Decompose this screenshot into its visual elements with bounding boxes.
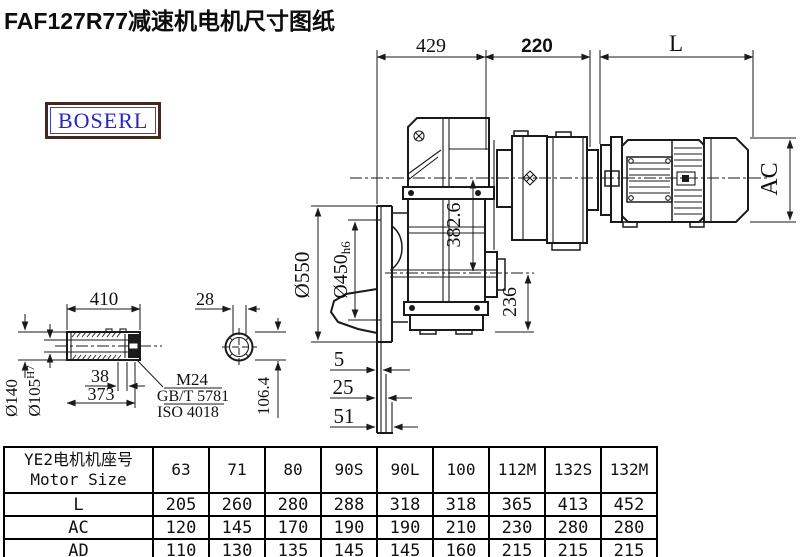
table-cell: 288 — [321, 493, 377, 516]
dim-373-label: 373 — [88, 384, 115, 404]
thread-spec-label: M24 — [176, 370, 209, 389]
table-cell: 413 — [545, 493, 601, 516]
row-label: AC — [4, 516, 153, 539]
table-cell: 205 — [153, 493, 209, 516]
dim-28-label: 28 — [196, 289, 214, 309]
dim-38-label: 38 — [91, 366, 109, 386]
table-cell: 130 — [209, 539, 265, 557]
table-cell: 215 — [545, 539, 601, 557]
table-cell: 260 — [209, 493, 265, 516]
table-cell: 110 — [153, 539, 209, 557]
table-cell: 135 — [265, 539, 321, 557]
table-cell: 365 — [489, 493, 545, 516]
table-cell: 190 — [377, 516, 433, 539]
table-header-motor-size: YE2电机机座号Motor Size — [4, 447, 153, 493]
table-row: L205260280288318318365413452 — [4, 493, 657, 516]
table-header-col: 71 — [209, 447, 265, 493]
flange-outline — [374, 206, 408, 433]
row-label: L — [4, 493, 153, 516]
dim-106-label: 106.4 — [254, 376, 273, 415]
row-label: AD — [4, 539, 153, 557]
table-cell: 280 — [265, 493, 321, 516]
table-header-col: 132M — [601, 447, 657, 493]
motor-outline — [601, 137, 748, 227]
table-header-col: 100 — [433, 447, 489, 493]
table-cell: 215 — [601, 539, 657, 557]
gearbox-outline — [331, 118, 505, 334]
gb-standard-label: GB/T 5781 — [157, 388, 229, 405]
table-header-col: 80 — [265, 447, 321, 493]
table-header-col: 132S — [545, 447, 601, 493]
table-cell: 230 — [489, 516, 545, 539]
table-header-col: 112M — [489, 447, 545, 493]
dim-410-label: 410 — [90, 289, 119, 310]
dim-AC-label: AC — [757, 162, 783, 195]
table-cell: 145 — [377, 539, 433, 557]
table-cell: 160 — [433, 539, 489, 557]
table-header-col: 63 — [153, 447, 209, 493]
dim-25-label: 25 — [333, 375, 354, 399]
table-cell: 318 — [433, 493, 489, 516]
table-cell: 280 — [545, 516, 601, 539]
leader-line — [137, 360, 163, 387]
dim-140-label: Ø140 — [2, 379, 21, 417]
dim-382-label: 382.6 — [443, 203, 465, 248]
table-cell: 318 — [377, 493, 433, 516]
table-cell: 215 — [489, 539, 545, 557]
table-cell: 452 — [601, 493, 657, 516]
dim-L-label: L — [669, 31, 683, 56]
dim-236-label: 236 — [499, 287, 521, 317]
table-cell: 170 — [265, 516, 321, 539]
table-cell: 145 — [321, 539, 377, 557]
dim-51-label: 51 — [334, 404, 355, 428]
table-row: AD110130135145145160215215215 — [4, 539, 657, 557]
iso-standard-label: ISO 4018 — [157, 404, 219, 421]
dim-105H7-label: Ø105H7 — [25, 365, 44, 417]
dim-550-label: Ø550 — [290, 252, 314, 299]
dim-450h6-label: Ø450h6 — [330, 241, 353, 299]
table-cell: 190 — [321, 516, 377, 539]
table-row: AC120145170190190210230280280 — [4, 516, 657, 539]
second-stage-outline — [497, 131, 598, 250]
dimension-table: YE2电机机座号Motor Size63718090S90L100112M132… — [3, 446, 658, 557]
drawing-page: FAF127R77减速机电机尺寸图纸 BOSERL — [0, 0, 800, 557]
table-header-row: YE2电机机座号Motor Size63718090S90L100112M132… — [4, 447, 657, 493]
table-cell: 280 — [601, 516, 657, 539]
table-header-col: 90S — [321, 447, 377, 493]
table-cell: 120 — [153, 516, 209, 539]
table-cell: 145 — [209, 516, 265, 539]
table-header-col: 90L — [377, 447, 433, 493]
dim-5-label: 5 — [334, 347, 345, 371]
dim-220-label: 220 — [521, 36, 553, 57]
table-cell: 210 — [433, 516, 489, 539]
dim-429-label: 429 — [416, 35, 446, 57]
